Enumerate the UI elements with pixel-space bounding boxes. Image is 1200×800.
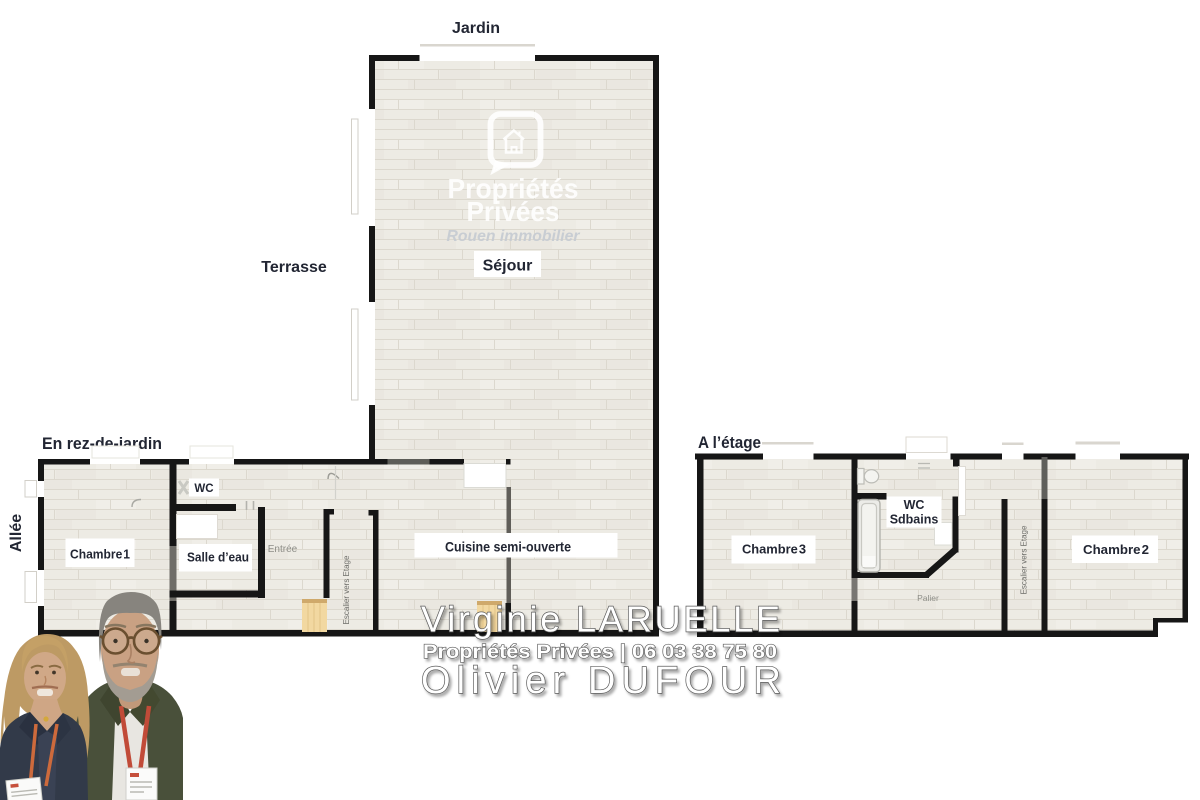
svg-text:Sdbains: Sdbains xyxy=(890,513,939,527)
svg-text:Jardin: Jardin xyxy=(452,20,500,37)
svg-text:Terrasse: Terrasse xyxy=(261,259,327,276)
svg-text:Cuisine semi-ouverte: Cuisine semi-ouverte xyxy=(445,539,571,555)
svg-text:Escalier vers Etage: Escalier vers Etage xyxy=(1020,525,1029,594)
svg-text:Chambre 3: Chambre 3 xyxy=(742,542,806,557)
svg-text:Séjour: Séjour xyxy=(483,258,533,275)
svg-text:Escalier vers Etage: Escalier vers Etage xyxy=(342,555,351,624)
svg-text:Privées: Privées xyxy=(467,196,560,227)
svg-text:Virginie LARUELLE: Virginie LARUELLE xyxy=(421,599,780,640)
svg-text:Allée: Allée xyxy=(8,514,25,552)
svg-text:WC: WC xyxy=(194,483,213,495)
svg-text:Rouen immobilier: Rouen immobilier xyxy=(447,228,581,245)
svg-text:Chambre 1: Chambre 1 xyxy=(70,547,130,562)
svg-text:Salle d’eau: Salle d’eau xyxy=(187,550,249,565)
svg-text:Olivier DUFOUR: Olivier DUFOUR xyxy=(421,660,781,702)
svg-text:A l’étage: A l’étage xyxy=(698,434,761,452)
svg-text:Palier: Palier xyxy=(917,593,939,603)
svg-text:Chambre 2: Chambre 2 xyxy=(1083,542,1149,557)
svg-text:Entrée: Entrée xyxy=(268,544,298,555)
svg-text:WC: WC xyxy=(904,498,925,512)
